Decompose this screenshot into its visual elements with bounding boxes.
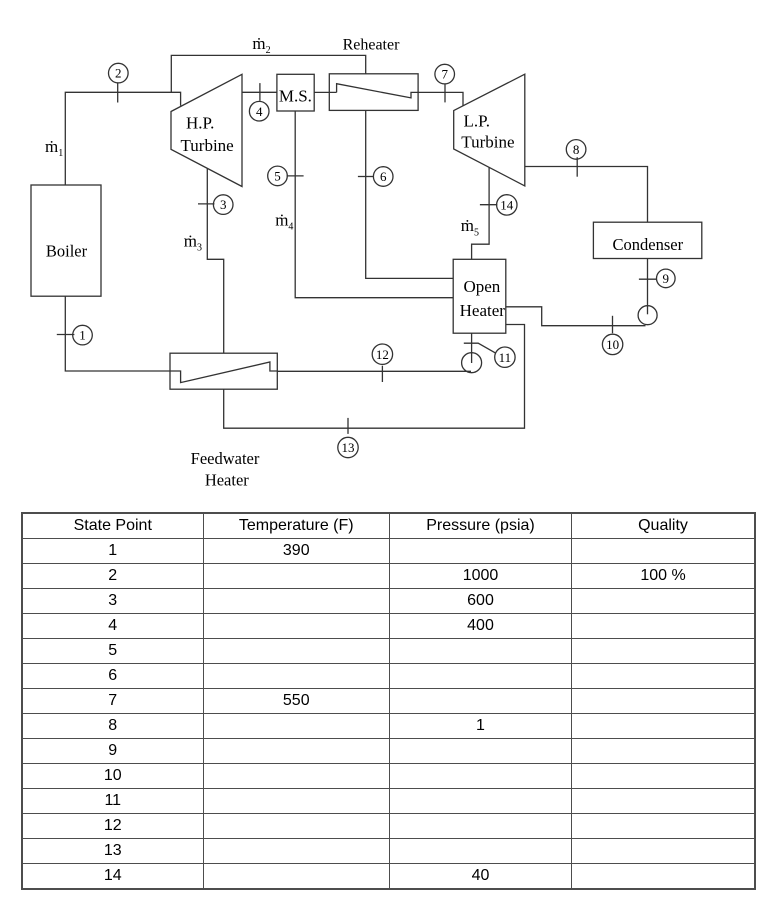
svg-text:Heater: Heater bbox=[460, 301, 506, 320]
svg-text:Heater: Heater bbox=[205, 470, 249, 489]
svg-text:H.P.: H.P. bbox=[186, 114, 214, 133]
svg-text:10: 10 bbox=[606, 337, 619, 352]
svg-text:ṁ3: ṁ3 bbox=[184, 231, 202, 253]
svg-text:M.S.: M.S. bbox=[279, 86, 312, 105]
svg-text:1: 1 bbox=[79, 328, 86, 343]
svg-text:13: 13 bbox=[342, 440, 355, 455]
svg-text:Turbine: Turbine bbox=[181, 136, 234, 155]
svg-text:8: 8 bbox=[573, 142, 580, 157]
svg-text:L.P.: L.P. bbox=[464, 112, 490, 131]
svg-text:ṁ5: ṁ5 bbox=[461, 216, 479, 238]
svg-text:Feedwater: Feedwater bbox=[191, 449, 260, 468]
svg-text:Turbine: Turbine bbox=[461, 132, 514, 151]
svg-text:Open: Open bbox=[463, 277, 500, 296]
svg-text:11: 11 bbox=[499, 350, 512, 365]
svg-text:2: 2 bbox=[115, 66, 122, 81]
svg-text:6: 6 bbox=[380, 169, 387, 184]
svg-text:ṁ2: ṁ2 bbox=[252, 34, 270, 56]
svg-text:Boiler: Boiler bbox=[46, 241, 88, 260]
svg-text:3: 3 bbox=[220, 197, 227, 212]
svg-text:14: 14 bbox=[500, 198, 514, 213]
svg-text:4: 4 bbox=[256, 104, 263, 119]
svg-text:Condenser: Condenser bbox=[613, 235, 684, 254]
svg-text:5: 5 bbox=[274, 169, 281, 184]
svg-text:9: 9 bbox=[663, 271, 670, 286]
svg-text:7: 7 bbox=[441, 67, 448, 82]
svg-text:ṁ4: ṁ4 bbox=[275, 211, 293, 233]
svg-text:Reheater: Reheater bbox=[343, 36, 401, 53]
svg-text:ṁ1: ṁ1 bbox=[45, 137, 63, 159]
svg-text:12: 12 bbox=[376, 347, 389, 362]
